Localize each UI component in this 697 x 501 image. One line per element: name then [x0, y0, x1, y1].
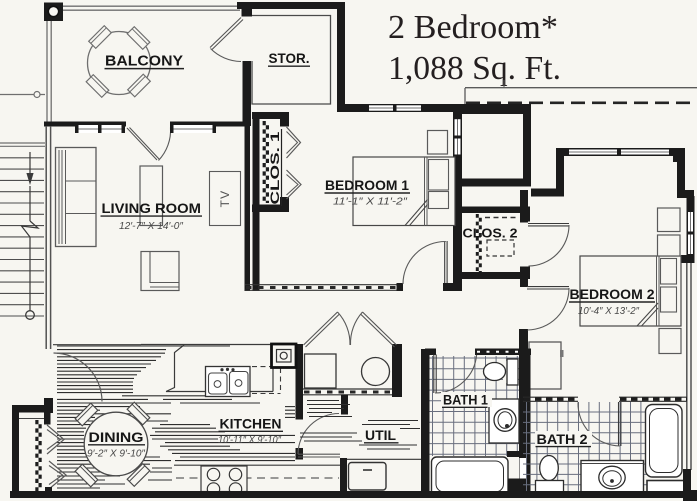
svg-text:BATH 1: BATH 1 [443, 393, 488, 408]
svg-text:10′-11″ X 9′-10″: 10′-11″ X 9′-10″ [218, 435, 281, 446]
svg-text:BATH 2: BATH 2 [537, 431, 588, 447]
svg-text:10′-4″ X 13′-2″: 10′-4″ X 13′-2″ [578, 306, 640, 317]
svg-text:1,088 Sq. Ft.: 1,088 Sq. Ft. [388, 50, 561, 87]
svg-text:CLOS. 1: CLOS. 1 [268, 131, 282, 205]
svg-text:STOR.: STOR. [269, 50, 310, 66]
svg-text:2 Bedroom*: 2 Bedroom* [388, 9, 558, 46]
svg-text:BEDROOM 2: BEDROOM 2 [570, 287, 655, 302]
svg-text:11′-1″ X 11′-2″: 11′-1″ X 11′-2″ [333, 197, 408, 208]
svg-text:DINING: DINING [89, 429, 144, 445]
svg-text:BEDROOM 1: BEDROOM 1 [325, 178, 409, 193]
svg-text:UTIL: UTIL [365, 428, 396, 443]
svg-text:9′-2″ X 9′-10″: 9′-2″ X 9′-10″ [87, 449, 146, 460]
svg-text:CLOS. 2: CLOS. 2 [463, 226, 518, 241]
svg-text:BALCONY: BALCONY [105, 54, 183, 70]
svg-text:TV: TV [218, 190, 232, 208]
svg-text:LIVING ROOM: LIVING ROOM [102, 201, 202, 216]
svg-text:12′-7″ X 14′-0″: 12′-7″ X 14′-0″ [119, 221, 184, 232]
svg-text:KITCHEN: KITCHEN [220, 416, 282, 432]
